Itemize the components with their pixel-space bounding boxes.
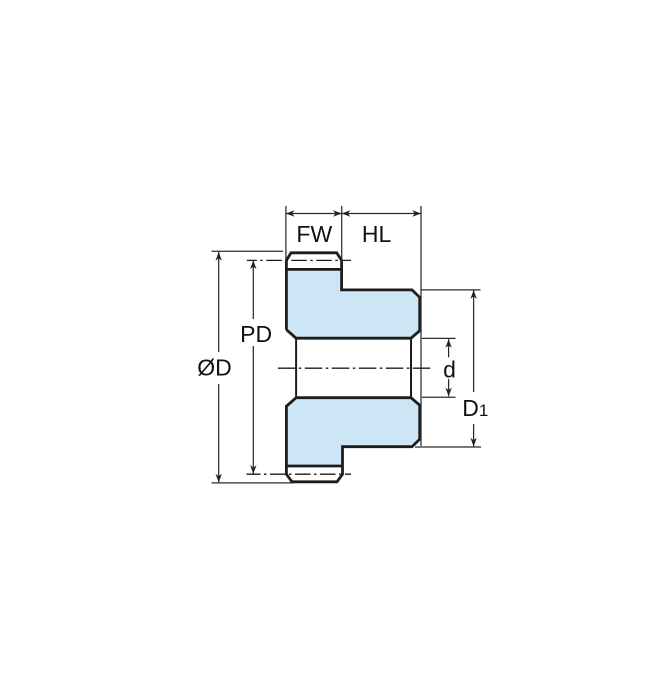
svg-text:d: d xyxy=(443,356,456,382)
svg-text:ØD: ØD xyxy=(197,355,232,381)
svg-text:HL: HL xyxy=(362,221,392,247)
svg-text:PD: PD xyxy=(240,321,272,347)
svg-text:FW: FW xyxy=(296,221,332,247)
